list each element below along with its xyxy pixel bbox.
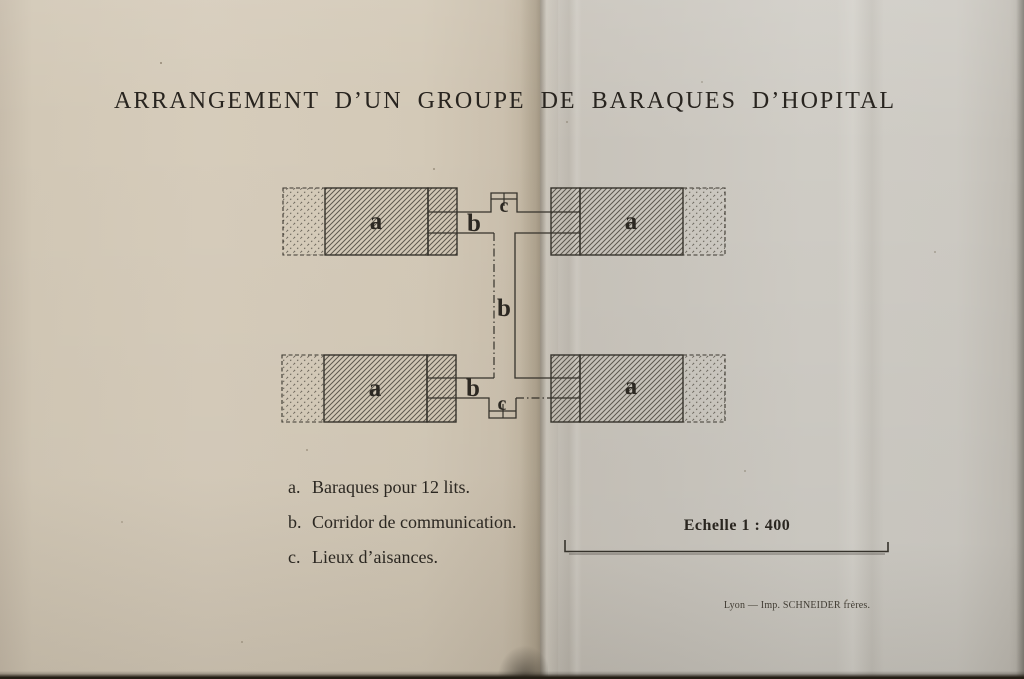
legend-item-c: c.Lieux d’aisances. [288, 547, 516, 582]
scale-bar [560, 536, 894, 558]
legend-item-b: b.Corridor de communication. [288, 512, 516, 547]
legend-text: Lieux d’aisances. [312, 547, 438, 567]
barrack-vestibule-section [427, 355, 456, 422]
barrack-porch-section [282, 355, 324, 422]
label-a: a [625, 208, 638, 235]
label-b: b [466, 375, 480, 402]
barrack-porch-section [683, 188, 725, 255]
label-c: c [500, 195, 509, 217]
barrack-bottom-left: a [282, 355, 456, 422]
scale-label: Echelle 1 : 400 [637, 517, 837, 535]
printer-imprint: Lyon — Imp. SCHNEIDER frères. [697, 600, 897, 611]
corridor-outline [515, 233, 551, 378]
barrack-vestibule-section [551, 355, 580, 422]
label-a: a [369, 375, 382, 402]
barrack-top-left: a [283, 188, 457, 255]
legend: a.Baraques pour 12 lits. b.Corridor de c… [288, 477, 516, 582]
barrack-top-right: a [551, 188, 725, 255]
scale-bar-line [565, 540, 888, 552]
label-b: b [497, 295, 511, 322]
corridor-outline [456, 398, 516, 418]
barrack-porch-section [283, 188, 325, 255]
barrack-vestibule-section [428, 188, 457, 255]
label-a: a [370, 208, 383, 235]
legend-key: a. [288, 477, 312, 498]
legend-text: Baraques pour 12 lits. [312, 477, 470, 497]
legend-key: c. [288, 547, 312, 568]
legend-text: Corridor de communication. [312, 512, 516, 532]
label-c: c [498, 393, 507, 415]
label-a: a [625, 373, 638, 400]
book-page-photo: ARRANGEMENT D’UN GROUPE DE BARAQUES D’HO… [0, 0, 1024, 679]
label-b: b [467, 210, 481, 237]
diagram-labels: b b b c c [466, 195, 511, 415]
barrack-bottom-right: a [551, 355, 725, 422]
barrack-vestibule-section [551, 188, 580, 255]
legend-item-a: a.Baraques pour 12 lits. [288, 477, 516, 512]
barrack-porch-section [683, 355, 725, 422]
legend-key: b. [288, 512, 312, 533]
